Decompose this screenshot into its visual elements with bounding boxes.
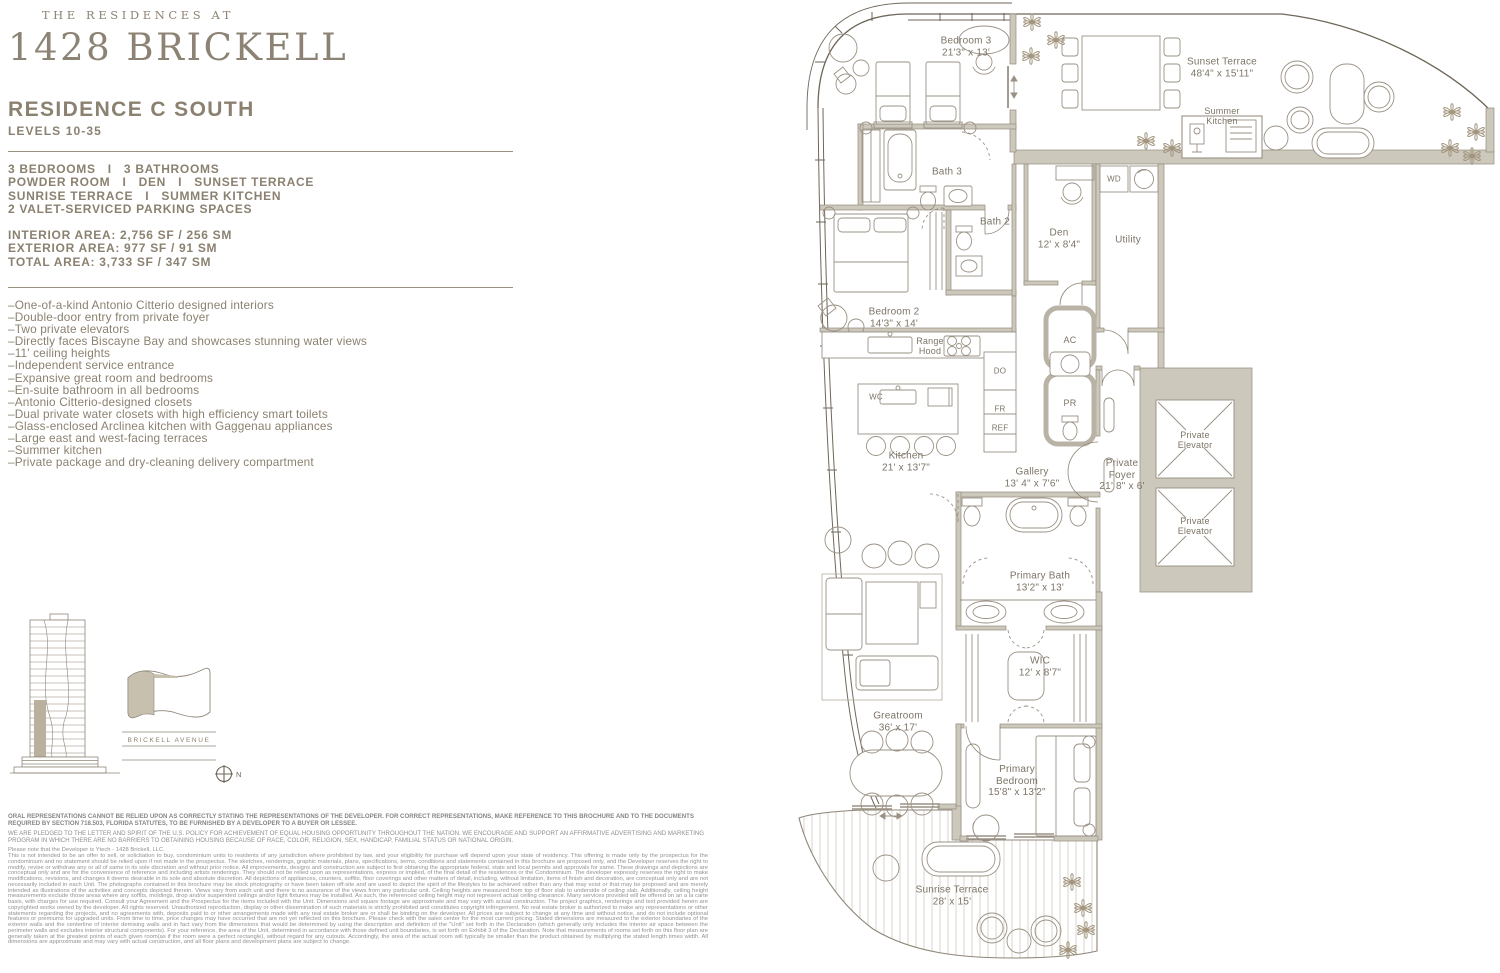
- area-summary: INTERIOR AREA: 2,756 SF / 256 SM EXTERIO…: [8, 229, 232, 269]
- feature-line: 3 BEDROOMS I 3 BATHROOMS: [8, 163, 314, 176]
- room-label-ac: AC: [1064, 335, 1077, 345]
- page-title: RESIDENCE C SOUTH: [8, 98, 255, 122]
- room-label-utility: Utility: [1115, 234, 1141, 246]
- room-label-private-foyer: PrivateFoyer21' 8" x 6': [1099, 458, 1144, 493]
- room-label-primary-bedroom: PrimaryBedroom15'8" x 13'2": [988, 764, 1045, 799]
- area-line: TOTAL AREA: 3,733 SF / 347 SM: [8, 256, 232, 269]
- brand-name: 1428 BRICKELL: [8, 26, 268, 69]
- feature-bullet: –Independent service entrance: [8, 359, 367, 371]
- room-label-range-hood: RangeHood: [916, 336, 944, 356]
- room-label-fr: FR: [994, 405, 1005, 414]
- levels-subtitle: LEVELS 10-35: [8, 124, 102, 138]
- divider: [8, 151, 513, 152]
- room-label-do: DO: [994, 367, 1006, 376]
- feature-summary: 3 BEDROOMS I 3 BATHROOMS POWDER ROOM I D…: [8, 163, 314, 217]
- brochure-page: { "brand": {"eyebrow": "THE RESIDENCES A…: [0, 0, 1500, 973]
- feature-bullet: –Expansive great room and bedrooms: [8, 372, 367, 384]
- room-label-wc: WC: [869, 393, 883, 402]
- feature-line: SUNRISE TERRACE I SUMMER KITCHEN: [8, 190, 314, 203]
- room-label-greatroom: Greatroom36' x 17': [873, 711, 923, 734]
- compass-north-label: N: [236, 770, 241, 779]
- legal-paragraph-3: Please note that the Developer is Ytech …: [8, 848, 708, 946]
- room-label-wic: WIC12' x 8'7": [1019, 656, 1061, 679]
- compass-icon: [215, 765, 233, 783]
- room-label-bedroom3: Bedroom 321'3" x 13': [941, 36, 992, 59]
- feature-line: 2 VALET-SERVICED PARKING SPACES: [8, 203, 314, 216]
- area-line: INTERIOR AREA: 2,756 SF / 256 SM: [8, 229, 232, 242]
- brand-block: THE RESIDENCES AT 1428 BRICKELL: [8, 8, 268, 69]
- legal-paragraph-2: WE ARE PLEDGED TO THE LETTER AND SPIRIT …: [8, 831, 708, 844]
- room-label-bath3: Bath 3: [932, 166, 962, 178]
- room-label-gallery: Gallery13' 4" x 7'6": [1005, 467, 1060, 490]
- legal-disclaimer: ORAL REPRESENTATIONS CANNOT BE RELIED UP…: [8, 814, 708, 950]
- room-label-ref: REF: [992, 424, 1009, 433]
- room-label-wd: WD: [1107, 175, 1121, 184]
- feature-line: POWDER ROOM I DEN I SUNSET TERRACE: [8, 176, 314, 189]
- room-label-summer-kitchen: SummerKitchen: [1204, 106, 1239, 126]
- room-label-pr: PR: [1064, 398, 1077, 408]
- building-elevation-icon: [10, 614, 120, 773]
- room-label-bath2: Bath 2: [980, 216, 1010, 228]
- feature-bullet-list: –One-of-a-kind Antonio Citterio designed…: [8, 299, 367, 468]
- room-label-primary-bath: Primary Bath13'2" x 13': [1010, 571, 1070, 594]
- room-label-elevator-2: PrivateElevator: [1178, 516, 1213, 536]
- feature-bullet: –En-suite bathroom in all bedrooms: [8, 384, 367, 396]
- room-label-sunrise-terrace: Sunrise Terrace28' x 15': [916, 885, 989, 908]
- room-label-bedroom2: Bedroom 214'3" x 14': [869, 307, 920, 330]
- room-label-kitchen: Kitchen21' x 13'7": [882, 451, 930, 474]
- divider: [8, 287, 513, 288]
- room-label-sunset-terrace: Sunset Terrace48'4" x 15'11": [1187, 57, 1257, 80]
- legal-paragraph-1: ORAL REPRESENTATIONS CANNOT BE RELIED UP…: [8, 814, 708, 827]
- area-line: EXTERIOR AREA: 977 SF / 91 SM: [8, 242, 232, 255]
- room-label-den: Den12' x 8'4": [1038, 228, 1080, 251]
- brand-eyebrow: THE RESIDENCES AT: [8, 8, 268, 22]
- site-footprint-icon: [128, 668, 210, 718]
- street-label: BRICKELL AVENUE: [128, 737, 211, 744]
- room-label-elevator-1: PrivateElevator: [1178, 430, 1213, 450]
- key-plan: BRICKELL AVENUE N: [10, 612, 250, 792]
- feature-bullet: –Private package and dry-cleaning delive…: [8, 456, 367, 468]
